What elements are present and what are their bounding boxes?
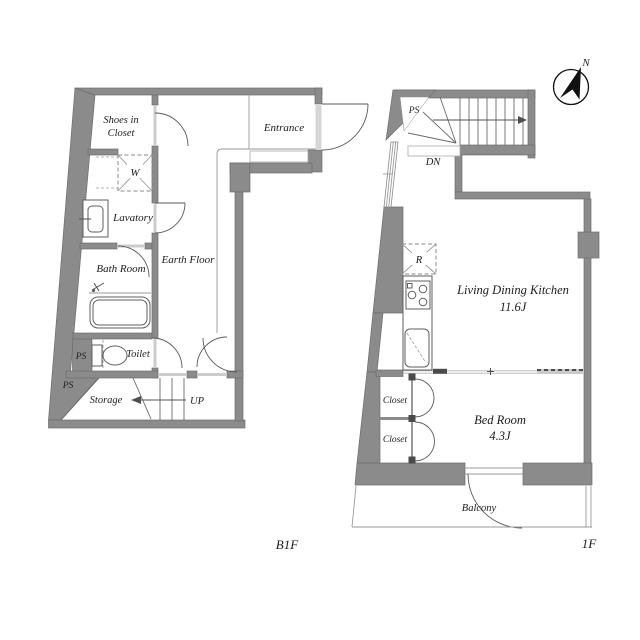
closet-lower-door-swing-a xyxy=(415,422,435,442)
label-pipe-shaft-lower: PS xyxy=(62,381,74,391)
bathtub xyxy=(89,283,151,328)
right-wall-pillar xyxy=(578,232,599,258)
room-label-shoes-in-closet-line1: Shoes in xyxy=(103,115,138,126)
toilet-fixture xyxy=(92,340,127,370)
entrance-door-leaf xyxy=(316,104,322,150)
hall-door-swing-left xyxy=(197,337,227,367)
entrance-door-swing xyxy=(322,104,368,150)
room-label-toilet: Toilet xyxy=(126,349,151,360)
label-pipe-shaft-1f: PS xyxy=(408,106,420,116)
stairs-up-arrow xyxy=(131,396,141,404)
closet-upper-door-swing-a xyxy=(415,379,434,398)
label-stairs-down: DN xyxy=(425,157,442,168)
room-label-storage: Storage xyxy=(90,395,123,406)
label-ldk-size: 11.6J xyxy=(500,300,528,314)
room-label-shoes-in-closet-line2: Closet xyxy=(108,128,136,139)
divider-post xyxy=(433,369,447,374)
balcony-door-swing xyxy=(468,474,522,528)
kitchen-counter xyxy=(403,276,432,370)
label-bed-room-size: 4.3J xyxy=(489,429,512,443)
label-washing-machine: W xyxy=(130,167,140,179)
f1-plan: PS DN R Living Dining Kitchen 11.6J Clos… xyxy=(352,90,599,551)
shoes-closet-door-swing xyxy=(155,113,188,146)
stair-landing xyxy=(408,146,460,156)
bedroom-closets xyxy=(380,374,435,464)
b1f-stairs xyxy=(131,378,186,420)
room-label-bed-room: Bed Room xyxy=(474,413,526,427)
compass: N xyxy=(554,57,591,105)
label-pipe-shaft-upper: PS xyxy=(75,352,87,362)
washing-machine-pan xyxy=(96,155,152,191)
stairs-down-arrow xyxy=(518,116,527,124)
closet-lower-door-swing-b xyxy=(415,442,435,462)
room-label-closet-upper: Closet xyxy=(383,396,408,406)
room-label-lavatory: Lavatory xyxy=(112,212,153,224)
room-label-living-dining-kitchen: Living Dining Kitchen xyxy=(456,283,569,297)
floor-plan-page: Shoes in Closet Entrance W Lavatory Bath… xyxy=(0,0,640,640)
compass-north-label: N xyxy=(581,57,590,69)
lavatory-sink xyxy=(79,200,108,237)
bath-faucet-icon xyxy=(92,283,104,292)
room-label-bath-room: Bath Room xyxy=(96,263,145,275)
closet-upper-door-swing-b xyxy=(415,398,434,417)
label-stairs-up: UP xyxy=(190,396,205,407)
room-label-closet-lower: Closet xyxy=(383,435,408,445)
floor-plan-drawing: Shoes in Closet Entrance W Lavatory Bath… xyxy=(0,0,640,640)
floor-label-1f: 1F xyxy=(582,536,598,551)
f1-window xyxy=(383,142,398,207)
lavatory-door-swing xyxy=(155,203,185,233)
label-refrigerator: R xyxy=(415,255,423,266)
room-label-balcony: Balcony xyxy=(462,503,497,514)
room-label-entrance: Entrance xyxy=(263,122,304,134)
floor-label-b1f: B1F xyxy=(276,537,299,552)
b1f-plan: Shoes in Closet Entrance W Lavatory Bath… xyxy=(49,88,369,552)
entrance-step xyxy=(250,151,308,162)
room-label-earth-floor: Earth Floor xyxy=(161,254,216,266)
